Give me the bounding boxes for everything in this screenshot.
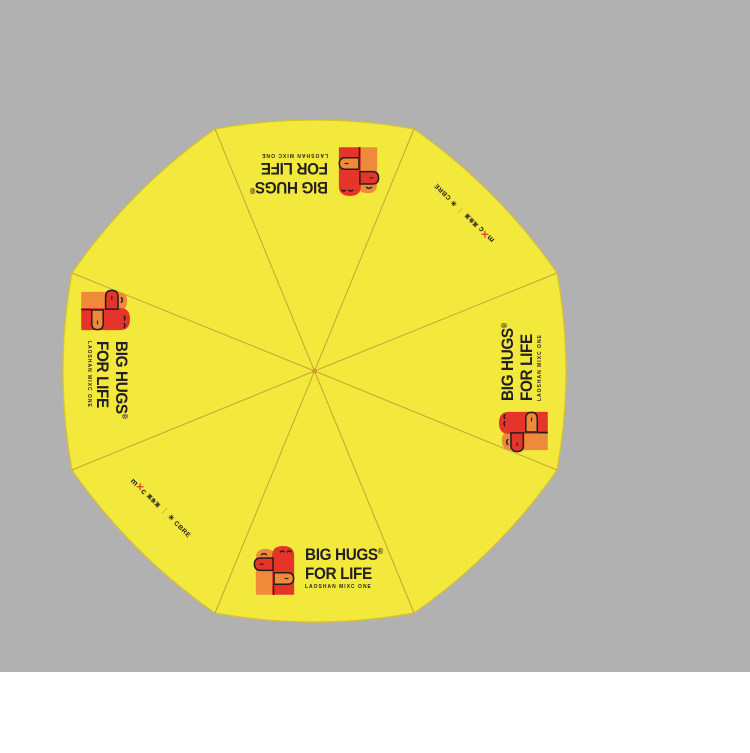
logo-line3: LAOSHAN MIXC ONE xyxy=(250,152,328,158)
big-hugs-wordmark: BIG HUGS® FOR LIFE LAOSHAN MIXC ONE xyxy=(250,152,328,197)
hug-icon xyxy=(81,289,135,333)
registered-mark: ® xyxy=(378,547,383,556)
hug-icon xyxy=(253,541,297,595)
big-hugs-logo-top: BIG HUGS® FOR LIFE LAOSHAN MIXC ONE xyxy=(230,145,380,203)
big-hugs-logo-right: BIG HUGS® FOR LIFE LAOSHAN MIXC ONE xyxy=(492,303,550,453)
hug-icon xyxy=(336,147,380,201)
hug-icon xyxy=(494,409,548,453)
logo-line3: LAOSHAN MIXC ONE xyxy=(305,585,383,591)
logo-line3: LAOSHAN MIXC ONE xyxy=(538,323,544,401)
big-hugs-wordmark: BIG HUGS® FOR LIFE LAOSHAN MIXC ONE xyxy=(499,323,544,401)
logo-line1: BIG HUGS xyxy=(305,545,378,564)
registered-mark: ® xyxy=(250,186,255,195)
bottom-white-strip xyxy=(0,672,750,753)
logo-line2: FOR LIFE xyxy=(518,323,535,401)
big-hugs-wordmark: BIG HUGS® FOR LIFE LAOSHAN MIXC ONE xyxy=(305,546,383,591)
big-hugs-logo-bottom: BIG HUGS® FOR LIFE LAOSHAN MIXC ONE xyxy=(253,539,403,597)
mockup-canvas: BIG HUGS® FOR LIFE LAOSHAN MIXC ONE BIG … xyxy=(0,0,750,672)
registered-mark: ® xyxy=(120,414,129,419)
logo-line2: FOR LIFE xyxy=(305,565,383,582)
logo-line2: FOR LIFE xyxy=(250,160,328,177)
registered-mark: ® xyxy=(500,323,509,328)
logo-line3: LAOSHAN MIXC ONE xyxy=(86,341,92,419)
canopy-center-cap xyxy=(312,369,317,374)
logo-line2: FOR LIFE xyxy=(94,341,111,419)
big-hugs-wordmark: BIG HUGS® FOR LIFE LAOSHAN MIXC ONE xyxy=(86,341,131,419)
logo-line1: BIG HUGS xyxy=(112,341,131,414)
logo-line1: BIG HUGS xyxy=(498,328,517,401)
big-hugs-logo-left: BIG HUGS® FOR LIFE LAOSHAN MIXC ONE xyxy=(79,289,137,439)
logo-line1: BIG HUGS xyxy=(255,178,328,197)
